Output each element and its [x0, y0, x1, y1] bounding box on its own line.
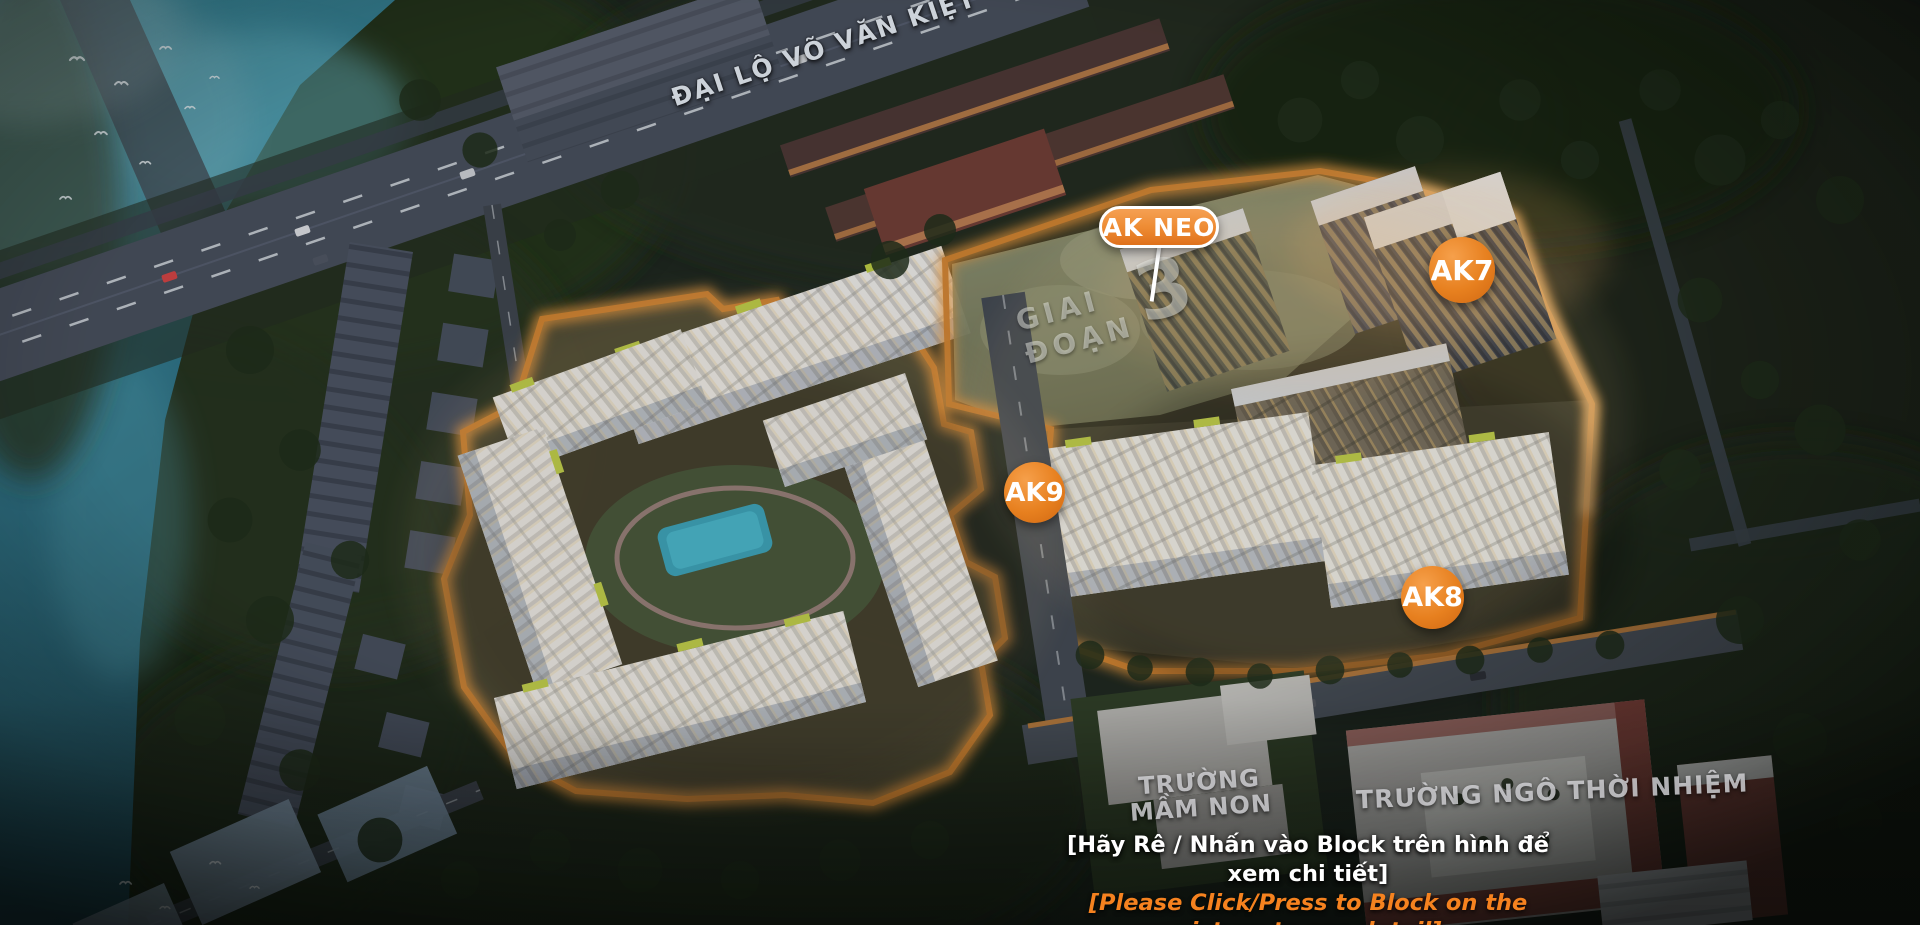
instruction-en: [Please Click/Press to Block on the pict… — [1048, 889, 1568, 925]
block-ak8-button[interactable]: AK8 — [1401, 566, 1464, 629]
masterplan-canvas: ĐẠI LỘ VÕ VĂN KIỆT GIAI ĐOẠN 3 AK NEO AK… — [0, 0, 1920, 925]
instruction-vi: [Hãy Rê / Nhấn vào Block trên hình để xe… — [1048, 831, 1568, 889]
block-ak9-button[interactable]: AK9 — [1004, 462, 1065, 523]
instructions: [Hãy Rê / Nhấn vào Block trên hình để xe… — [1048, 831, 1568, 925]
block-ak-neo-button[interactable]: AK NEO — [1099, 206, 1219, 248]
kindergarten-label: TRƯỜNG MẦM NON — [1118, 763, 1281, 826]
block-ak7-button[interactable]: AK7 — [1429, 237, 1495, 303]
